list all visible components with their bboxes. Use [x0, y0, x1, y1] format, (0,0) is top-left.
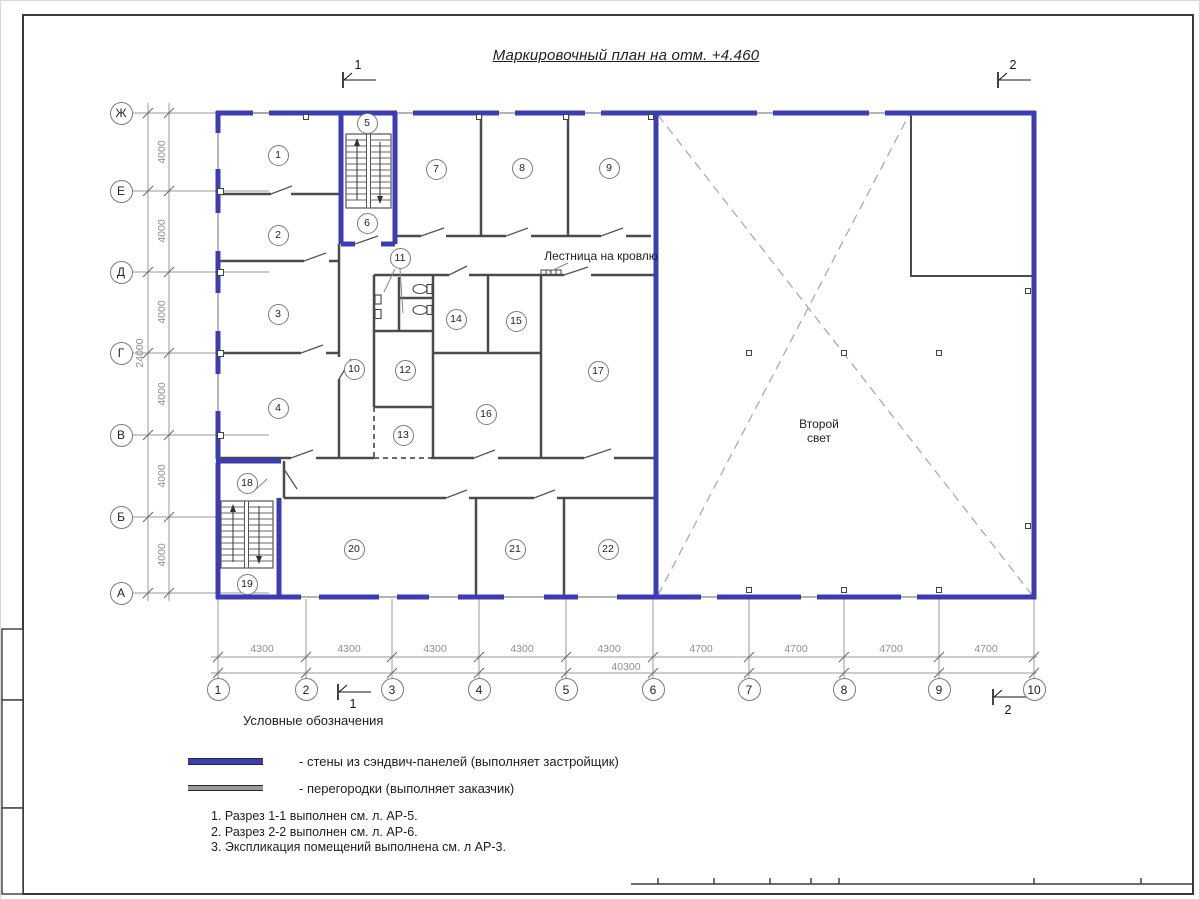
- note-line: 1. Разрез 1-1 выполнен см. л. АР-5.: [211, 809, 506, 825]
- door-swings: [271, 186, 623, 498]
- legend-heading: Условные обозначения: [243, 713, 383, 728]
- axis-circle-Ж: Ж: [110, 102, 133, 125]
- axis-circle-А: А: [110, 582, 133, 605]
- section-mark-number-1: 1: [355, 58, 362, 72]
- dim-label-4700: 4700: [879, 643, 902, 655]
- drawing-sheet: Маркировочный план на отм. +4.460 Лестни…: [0, 0, 1200, 900]
- dim-label-4300: 4300: [510, 643, 533, 655]
- room-label-4: 4: [268, 398, 289, 419]
- axis-circle-9: 9: [928, 678, 951, 701]
- section-mark-arrow: [339, 685, 347, 692]
- sheet-margin-boxes: [2, 629, 23, 894]
- room-label-18: 18: [237, 473, 258, 494]
- second-light-label-2: свет: [807, 431, 831, 445]
- partition-walls: [218, 113, 656, 597]
- room-label-13: 13: [393, 425, 414, 446]
- room-label-3: 3: [268, 304, 289, 325]
- second-light-label-1: Второй: [799, 417, 839, 431]
- dim-label-4000: 4000: [156, 219, 168, 242]
- room-label-12: 12: [395, 360, 416, 381]
- room-label-19: 19: [237, 574, 258, 595]
- axis-circle-Е: Е: [110, 180, 133, 203]
- stair-roof-label: Лестница на кровлю: [544, 249, 658, 263]
- axis-circle-6: 6: [642, 678, 665, 701]
- dim-label-total-40300: 40300: [611, 661, 640, 673]
- dim-label-4700: 4700: [784, 643, 807, 655]
- axis-circle-Д: Д: [110, 261, 133, 284]
- room-label-17: 17: [588, 361, 609, 382]
- section-mark-arrow: [994, 690, 1002, 697]
- note-line: 2. Разрез 2-2 выполнен см. л. АР-6.: [211, 825, 506, 841]
- dim-label-4300: 4300: [597, 643, 620, 655]
- room-label-9: 9: [599, 158, 620, 179]
- note-line: 3. Экспликация помещений выполнена см. л…: [211, 840, 506, 856]
- dim-label-4700: 4700: [974, 643, 997, 655]
- legend-item-label: - перегородки (выполняет заказчик): [299, 781, 514, 796]
- axis-circle-4: 4: [468, 678, 491, 701]
- room-label-16: 16: [476, 404, 497, 425]
- title-block-top-edge: [631, 878, 1193, 884]
- room-label-1: 1: [268, 145, 289, 166]
- wc-fixtures: [375, 285, 432, 319]
- axis-circle-3: 3: [381, 678, 404, 701]
- dim-label-total-24000: 24000: [134, 338, 146, 367]
- dim-label-4300: 4300: [423, 643, 446, 655]
- room-label-22: 22: [598, 539, 619, 560]
- axis-circle-7: 7: [738, 678, 761, 701]
- dim-label-4000: 4000: [156, 300, 168, 323]
- stair-bottom: [221, 501, 273, 568]
- room-label-14: 14: [446, 309, 467, 330]
- legend-item: - перегородки (выполняет заказчик): [188, 780, 514, 796]
- legend-swatch: [188, 785, 263, 791]
- drawing-title: Маркировочный план на отм. +4.460: [471, 47, 781, 64]
- stair-top: [346, 134, 391, 208]
- axis-circle-10: 10: [1023, 678, 1046, 701]
- section-mark-arrow: [999, 73, 1007, 80]
- axis-circle-8: 8: [833, 678, 856, 701]
- dim-label-4300: 4300: [337, 643, 360, 655]
- room-label-10: 10: [344, 359, 365, 380]
- dim-label-4000: 4000: [156, 543, 168, 566]
- room-label-6: 6: [357, 213, 378, 234]
- room-label-20: 20: [344, 539, 365, 560]
- room-label-2: 2: [268, 225, 289, 246]
- room-label-7: 7: [426, 159, 447, 180]
- axis-circle-5: 5: [555, 678, 578, 701]
- legend-item: - стены из сэндвич-панелей (выполняет за…: [188, 753, 619, 769]
- room-label-8: 8: [512, 158, 533, 179]
- section-mark-number-2: 2: [1010, 58, 1017, 72]
- axis-circle-Б: Б: [110, 506, 133, 529]
- notes-list: 1. Разрез 1-1 выполнен см. л. АР-5.2. Ра…: [211, 809, 506, 856]
- section-mark-number-1: 1: [350, 697, 357, 711]
- axis-circle-2: 2: [295, 678, 318, 701]
- dim-label-4700: 4700: [689, 643, 712, 655]
- room-label-15: 15: [506, 311, 527, 332]
- axis-circle-В: В: [110, 424, 133, 447]
- dim-label-4000: 4000: [156, 382, 168, 405]
- section-mark-arrow: [344, 73, 352, 80]
- section-mark-number-2: 2: [1005, 703, 1012, 717]
- legend-swatch: [188, 758, 263, 765]
- mezzanine-cutout: [911, 113, 1034, 276]
- axis-circle-Г: Г: [110, 342, 133, 365]
- room-label-5: 5: [357, 113, 378, 134]
- axis-circle-1: 1: [207, 678, 230, 701]
- dim-label-4000: 4000: [156, 140, 168, 163]
- room-label-11: 11: [390, 248, 411, 269]
- dim-label-4000: 4000: [156, 464, 168, 487]
- room-label-21: 21: [505, 539, 526, 560]
- dim-label-4300: 4300: [250, 643, 273, 655]
- legend-item-label: - стены из сэндвич-панелей (выполняет за…: [299, 754, 619, 769]
